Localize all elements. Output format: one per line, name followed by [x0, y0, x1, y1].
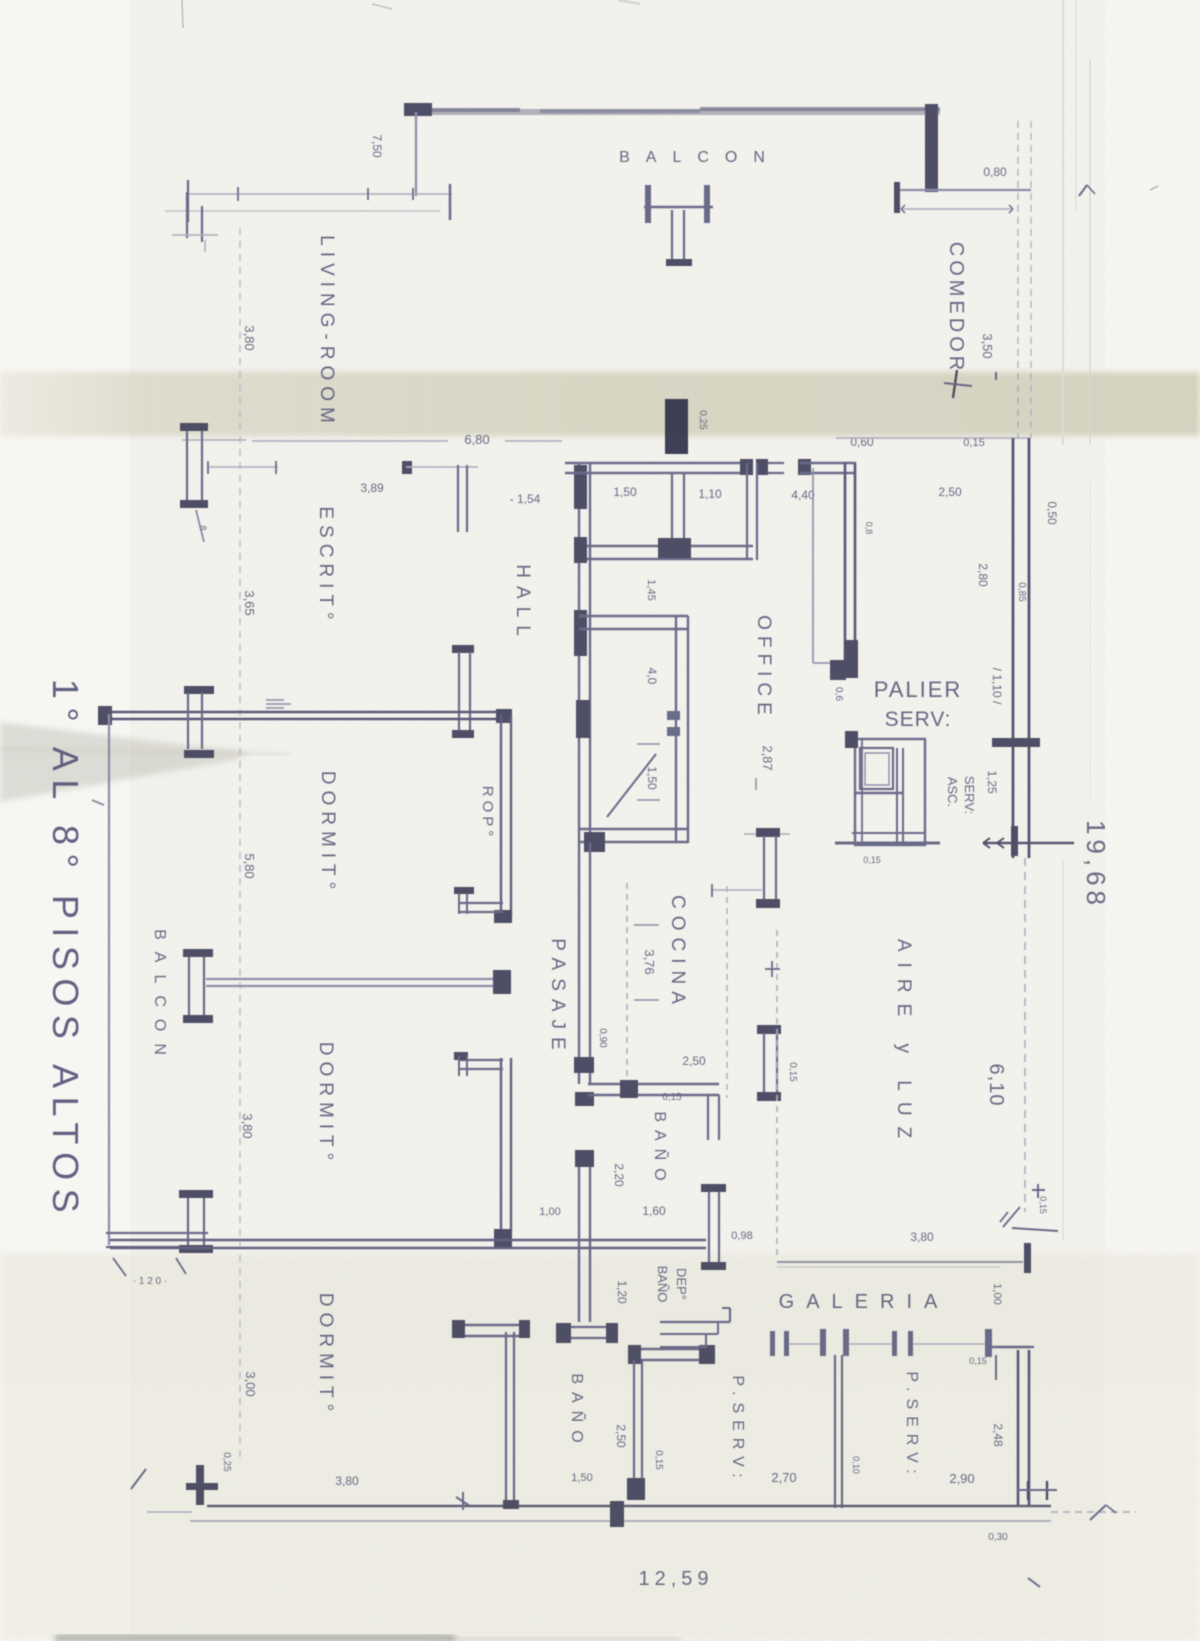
svg-text:3,00: 3,00 [243, 1371, 258, 1396]
svg-text:ASC.: ASC. [945, 777, 960, 807]
svg-text:ROP°: ROP° [479, 786, 496, 841]
svg-text:3,50: 3,50 [980, 333, 995, 358]
svg-text:0,15: 0,15 [863, 855, 881, 865]
svg-text:0,25: 0,25 [697, 410, 708, 430]
svg-text:BAÑO: BAÑO [568, 1373, 588, 1450]
svg-text:P.SERV:: P.SERV: [729, 1375, 746, 1484]
svg-text:DEP°: DEP° [674, 1268, 689, 1300]
svg-text:1,50: 1,50 [571, 1472, 592, 1484]
svg-text:SERV:: SERV: [962, 776, 977, 814]
svg-text:0,15: 0,15 [1038, 1196, 1048, 1214]
svg-text:2,70: 2,70 [771, 1470, 796, 1485]
svg-text:0,15: 0,15 [963, 437, 984, 449]
svg-text:1,45: 1,45 [645, 579, 657, 600]
svg-text:DORMIT°: DORMIT° [317, 771, 338, 896]
svg-text:4,0: 4,0 [645, 668, 659, 685]
svg-text:4,40: 4,40 [791, 488, 815, 502]
svg-text:0,15: 0,15 [969, 1356, 987, 1366]
svg-text:3,80: 3,80 [910, 1230, 934, 1244]
svg-text:· 1 2 0 ·: · 1 2 0 · [133, 1276, 167, 1287]
svg-text:0,8: 0,8 [864, 522, 874, 535]
svg-text:2,50: 2,50 [614, 1424, 628, 1448]
svg-text:0,15: 0,15 [662, 1092, 682, 1103]
svg-text:DORMIT°: DORMIT° [315, 1293, 336, 1418]
svg-text:7,50: 7,50 [370, 134, 384, 158]
svg-text:0,60: 0,60 [850, 435, 874, 449]
svg-text:0,6: 0,6 [833, 687, 844, 701]
svg-text:0,90: 0,90 [597, 1028, 608, 1048]
svg-text:1,60: 1,60 [642, 1204, 666, 1218]
svg-text:6,80: 6,80 [464, 432, 489, 447]
svg-text:2,48: 2,48 [991, 1423, 1005, 1447]
svg-text:ESCRIT°: ESCRIT° [315, 506, 336, 625]
svg-text:GALERIA: GALERIA [779, 1291, 950, 1313]
svg-text:0,15: 0,15 [653, 1450, 664, 1470]
svg-text:3,65: 3,65 [242, 590, 257, 615]
svg-text:3,80: 3,80 [335, 1474, 359, 1488]
svg-text:AIRE y LUZ: AIRE y LUZ [893, 939, 914, 1149]
svg-text:0,25: 0,25 [221, 1452, 232, 1472]
svg-text:COMEDOR: COMEDOR [945, 242, 967, 374]
svg-text:PALIER: PALIER [874, 677, 963, 702]
svg-text:1,20: 1,20 [615, 1280, 629, 1304]
svg-text:3,80: 3,80 [240, 1113, 255, 1138]
svg-text:1,50: 1,50 [613, 485, 637, 499]
svg-text:2,90: 2,90 [949, 1471, 974, 1486]
svg-text:2,50: 2,50 [938, 485, 962, 499]
svg-text:1,10: 1,10 [698, 487, 722, 501]
svg-text:PASAJE: PASAJE [547, 938, 568, 1057]
svg-text:1,50: 1,50 [645, 766, 659, 790]
svg-text:BALCON: BALCON [151, 929, 168, 1067]
svg-text:DORMIT°: DORMIT° [315, 1042, 336, 1167]
svg-text:6,10: 6,10 [985, 1064, 1007, 1107]
svg-text:1,25: 1,25 [985, 770, 999, 794]
svg-text:0,80: 0,80 [983, 165, 1007, 179]
svg-text:COCINA: COCINA [667, 895, 688, 1011]
svg-text:P.SERV:: P.SERV: [903, 1371, 920, 1480]
svg-text:SERV:: SERV: [885, 708, 952, 731]
svg-text:BAÑO: BAÑO [655, 1266, 670, 1303]
svg-text:1,00: 1,00 [991, 1283, 1003, 1304]
svg-text:2,87: 2,87 [760, 745, 775, 770]
svg-text:BAÑO: BAÑO [651, 1111, 671, 1188]
svg-text:2,80: 2,80 [976, 563, 990, 587]
svg-text:3,89: 3,89 [360, 481, 384, 495]
svg-text:19,68: 19,68 [1081, 820, 1111, 910]
svg-text:0,85: 0,85 [1016, 582, 1027, 602]
svg-text:0,15: 0,15 [787, 1062, 798, 1082]
svg-text:HALL: HALL [512, 564, 533, 644]
svg-text:0,98: 0,98 [731, 1230, 752, 1242]
svg-text:- 1,54: - 1,54 [510, 492, 541, 506]
svg-text:2,50: 2,50 [682, 1054, 706, 1068]
svg-text:8: 8 [198, 525, 208, 530]
svg-text:0,10: 0,10 [851, 1456, 861, 1474]
svg-text:LIVING-ROOM: LIVING-ROOM [316, 235, 337, 429]
svg-text:0,50: 0,50 [1045, 501, 1059, 525]
svg-text:OFFICE: OFFICE [753, 615, 774, 721]
svg-text:3,80: 3,80 [242, 325, 257, 350]
svg-text:0,30: 0,30 [988, 1532, 1008, 1543]
svg-text:5,80: 5,80 [242, 853, 257, 878]
svg-text:2,20: 2,20 [612, 1163, 626, 1187]
svg-text:1,00: 1,00 [539, 1206, 560, 1218]
svg-text:3,76: 3,76 [642, 949, 657, 974]
svg-text:12,59: 12,59 [638, 1568, 713, 1590]
svg-text:/ 1,10 /: / 1,10 / [990, 668, 1004, 705]
svg-text:1° AL 8° PISOS ALTOS: 1° AL 8° PISOS ALTOS [45, 679, 86, 1221]
svg-text:BALCON: BALCON [619, 149, 781, 166]
